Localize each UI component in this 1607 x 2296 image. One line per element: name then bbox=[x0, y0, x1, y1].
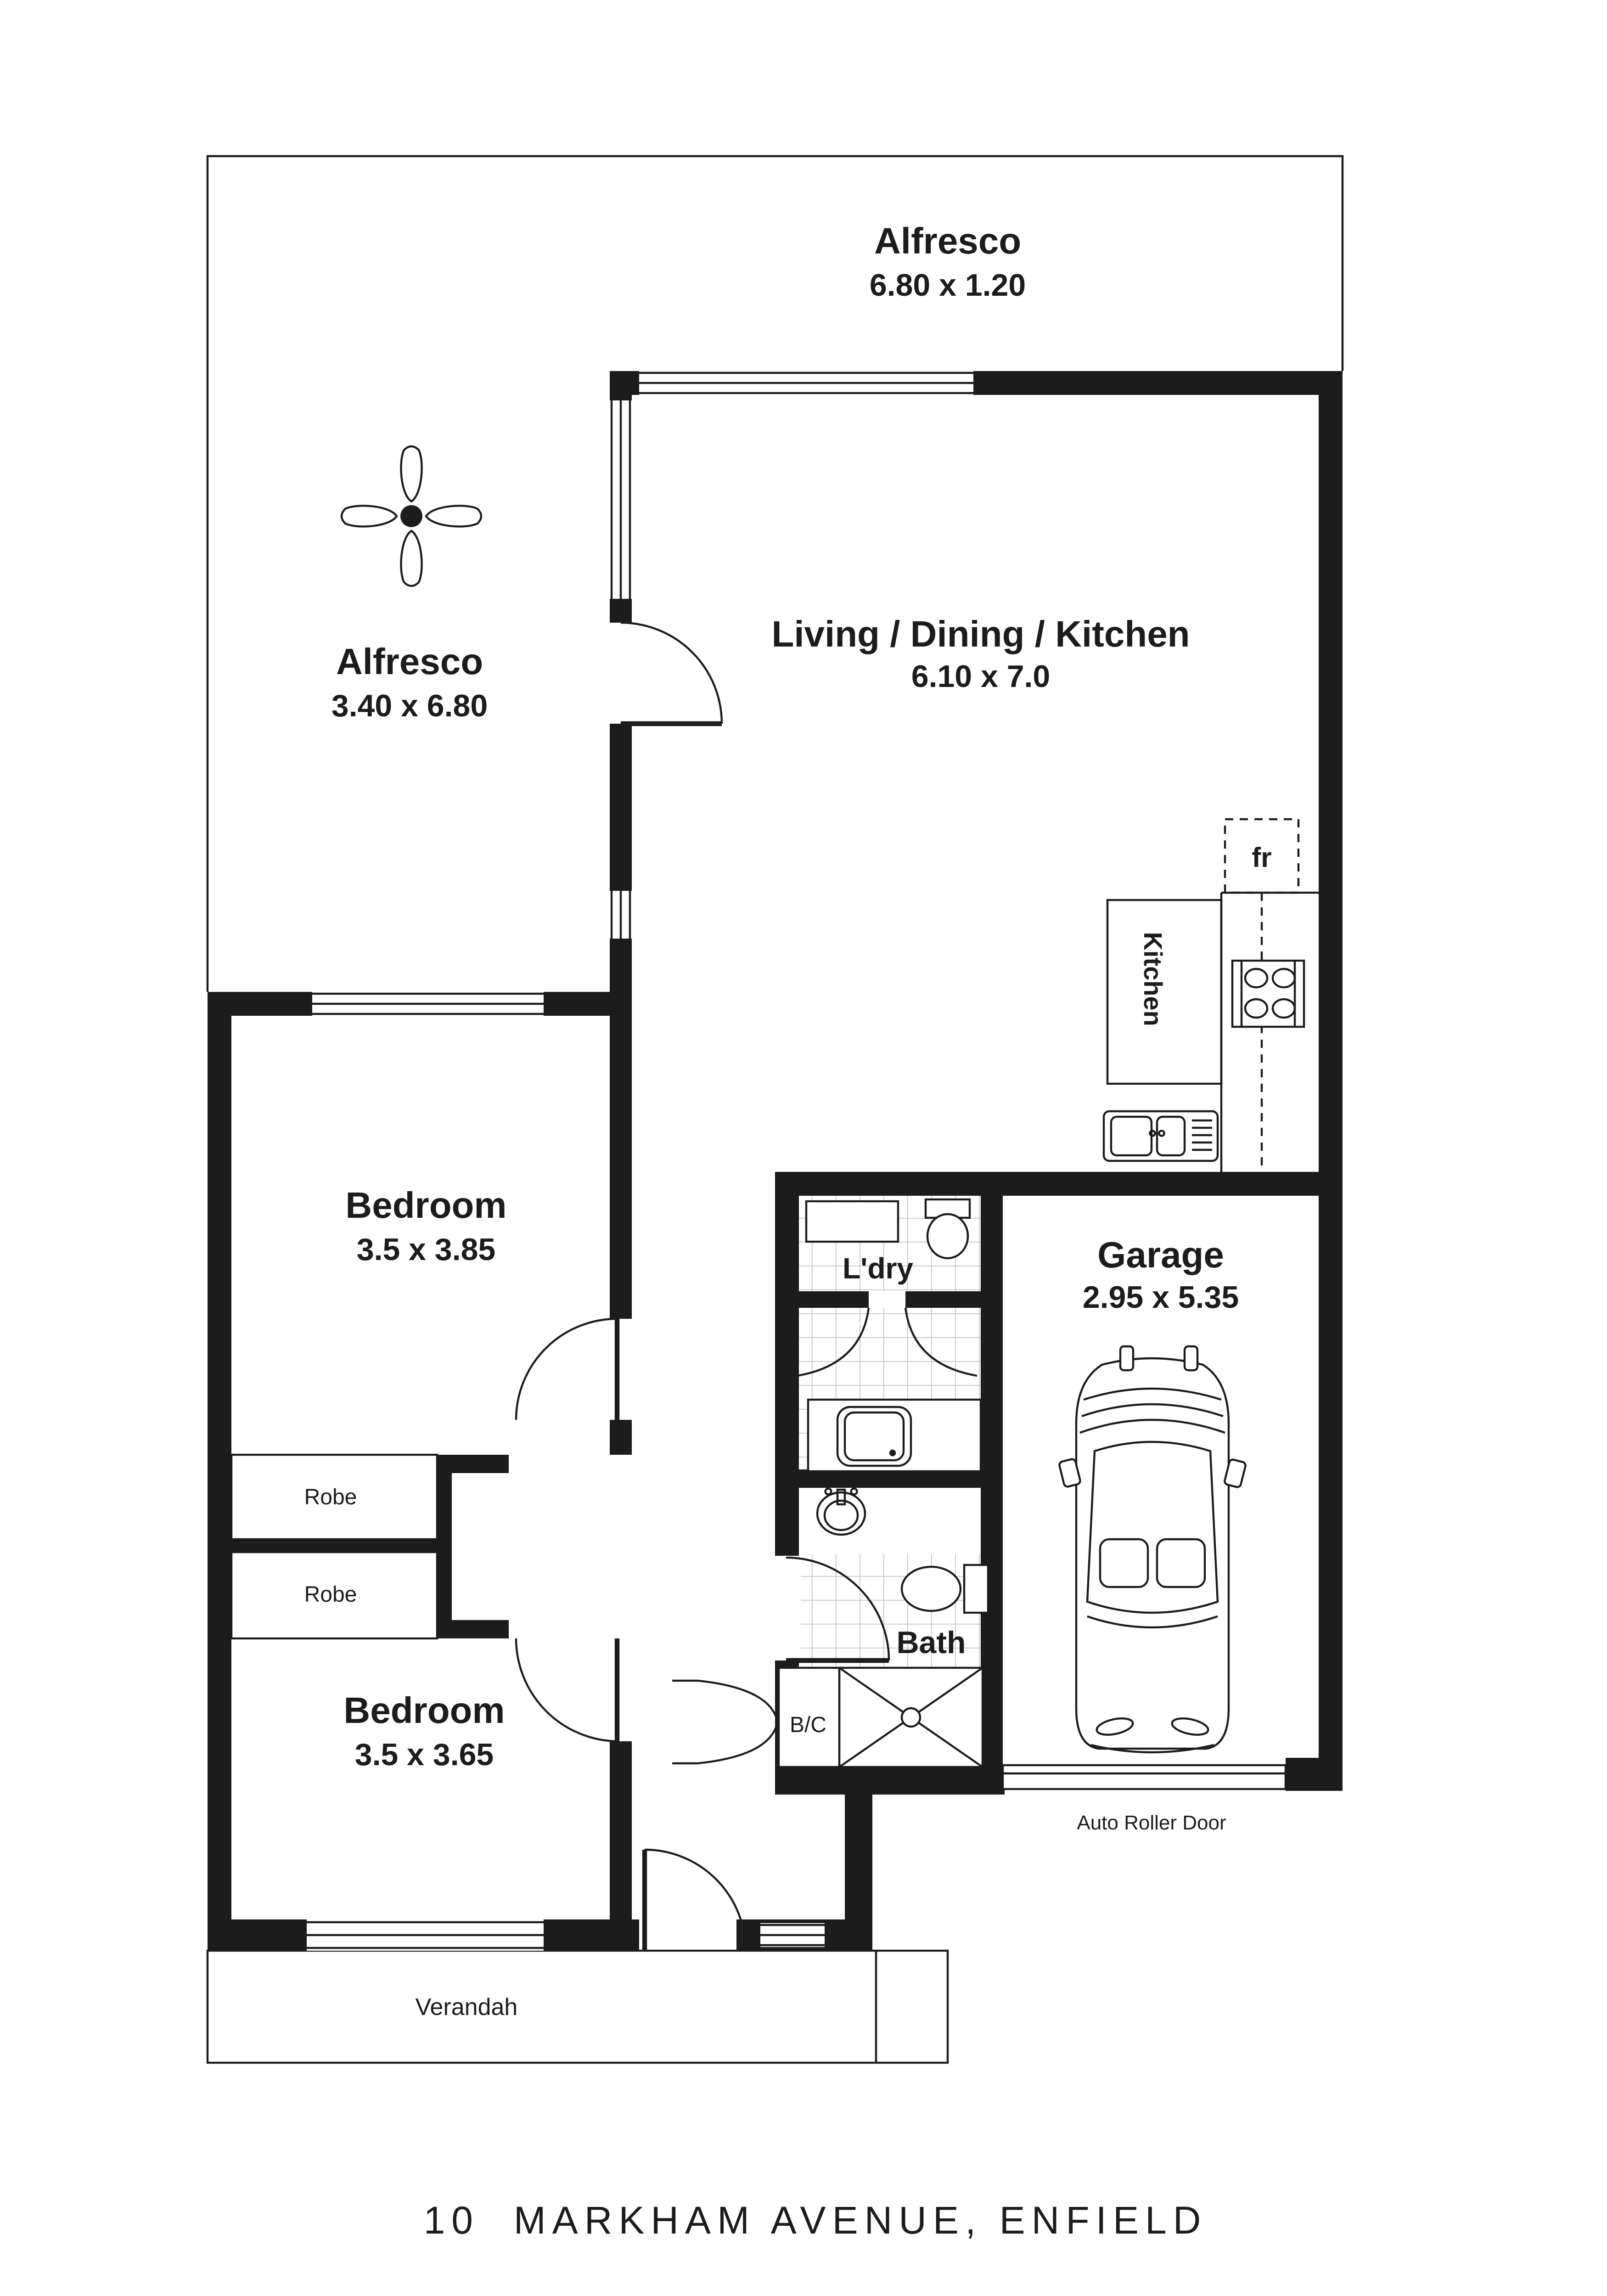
label-robe1: Robe bbox=[304, 1485, 357, 1509]
label-laundry: L'dry bbox=[843, 1252, 913, 1285]
label-verandah: Verandah bbox=[416, 1994, 518, 2020]
door-alfresco-living bbox=[621, 623, 722, 724]
label-kitchen: Kitchen bbox=[1139, 932, 1168, 1026]
label-alfresco-side: Alfresco bbox=[336, 641, 483, 682]
laundry-trough-icon bbox=[806, 1201, 898, 1242]
ceiling-fan-icon bbox=[342, 446, 481, 586]
label-fridge: fr bbox=[1252, 842, 1271, 873]
page-title: 10 MARKHAM AVENUE, ENFIELD bbox=[424, 2199, 1208, 2242]
vanity-basin-icon bbox=[817, 1489, 865, 1535]
floor-plan-svg: Alfresco 6.80 x 1.20 Alfresco 3.40 x 6.8… bbox=[0, 0, 1607, 2296]
label-bc: B/C bbox=[790, 1713, 826, 1737]
shower-icon bbox=[808, 1400, 981, 1471]
label-bath: Bath bbox=[896, 1625, 966, 1660]
dims-alfresco-side: 3.40 x 6.80 bbox=[332, 688, 488, 723]
window-entry-sidelight bbox=[760, 1923, 825, 1947]
car-icon bbox=[1059, 1346, 1246, 1752]
label-bedroom2: Bedroom bbox=[343, 1690, 505, 1731]
door-bedroom2 bbox=[516, 1638, 617, 1741]
shower-base-cross-icon bbox=[839, 1668, 983, 1767]
bath-toilet-icon bbox=[902, 1565, 988, 1613]
window-bedroom1 bbox=[312, 992, 544, 1016]
dims-bedroom1: 3.5 x 3.85 bbox=[357, 1232, 495, 1267]
roller-door bbox=[1003, 1765, 1286, 1789]
dims-garage: 2.95 x 5.35 bbox=[1083, 1280, 1239, 1315]
dims-alfresco-top: 6.80 x 1.20 bbox=[870, 268, 1026, 303]
bifold-doors-bc bbox=[672, 1681, 777, 1763]
label-bedroom1: Bedroom bbox=[345, 1185, 506, 1226]
door-bedroom1 bbox=[516, 1319, 617, 1420]
label-living: Living / Dining / Kitchen bbox=[771, 613, 1190, 654]
label-robe2: Robe bbox=[304, 1582, 357, 1607]
floor-plan-page: Alfresco 6.80 x 1.20 Alfresco 3.40 x 6.8… bbox=[0, 0, 1607, 2296]
stove-icon bbox=[1232, 961, 1304, 1027]
label-auto-roller-door: Auto Roller Door bbox=[1077, 1812, 1226, 1834]
window-alfresco-wall-lower bbox=[610, 891, 632, 939]
label-garage: Garage bbox=[1097, 1234, 1224, 1275]
dims-bedroom2: 3.5 x 3.65 bbox=[355, 1737, 494, 1772]
laundry-toilet-icon bbox=[926, 1199, 970, 1258]
dims-living: 6.10 x 7.0 bbox=[911, 659, 1050, 694]
label-alfresco-top: Alfresco bbox=[874, 220, 1021, 261]
window-alfresco-wall-upper bbox=[610, 400, 632, 599]
door-front-entry bbox=[645, 1850, 746, 1951]
kitchen-sink-icon bbox=[1104, 1111, 1218, 1161]
window-living-top bbox=[639, 371, 973, 395]
verandah-outline bbox=[208, 1951, 948, 2063]
window-bedroom2 bbox=[307, 1919, 544, 1951]
